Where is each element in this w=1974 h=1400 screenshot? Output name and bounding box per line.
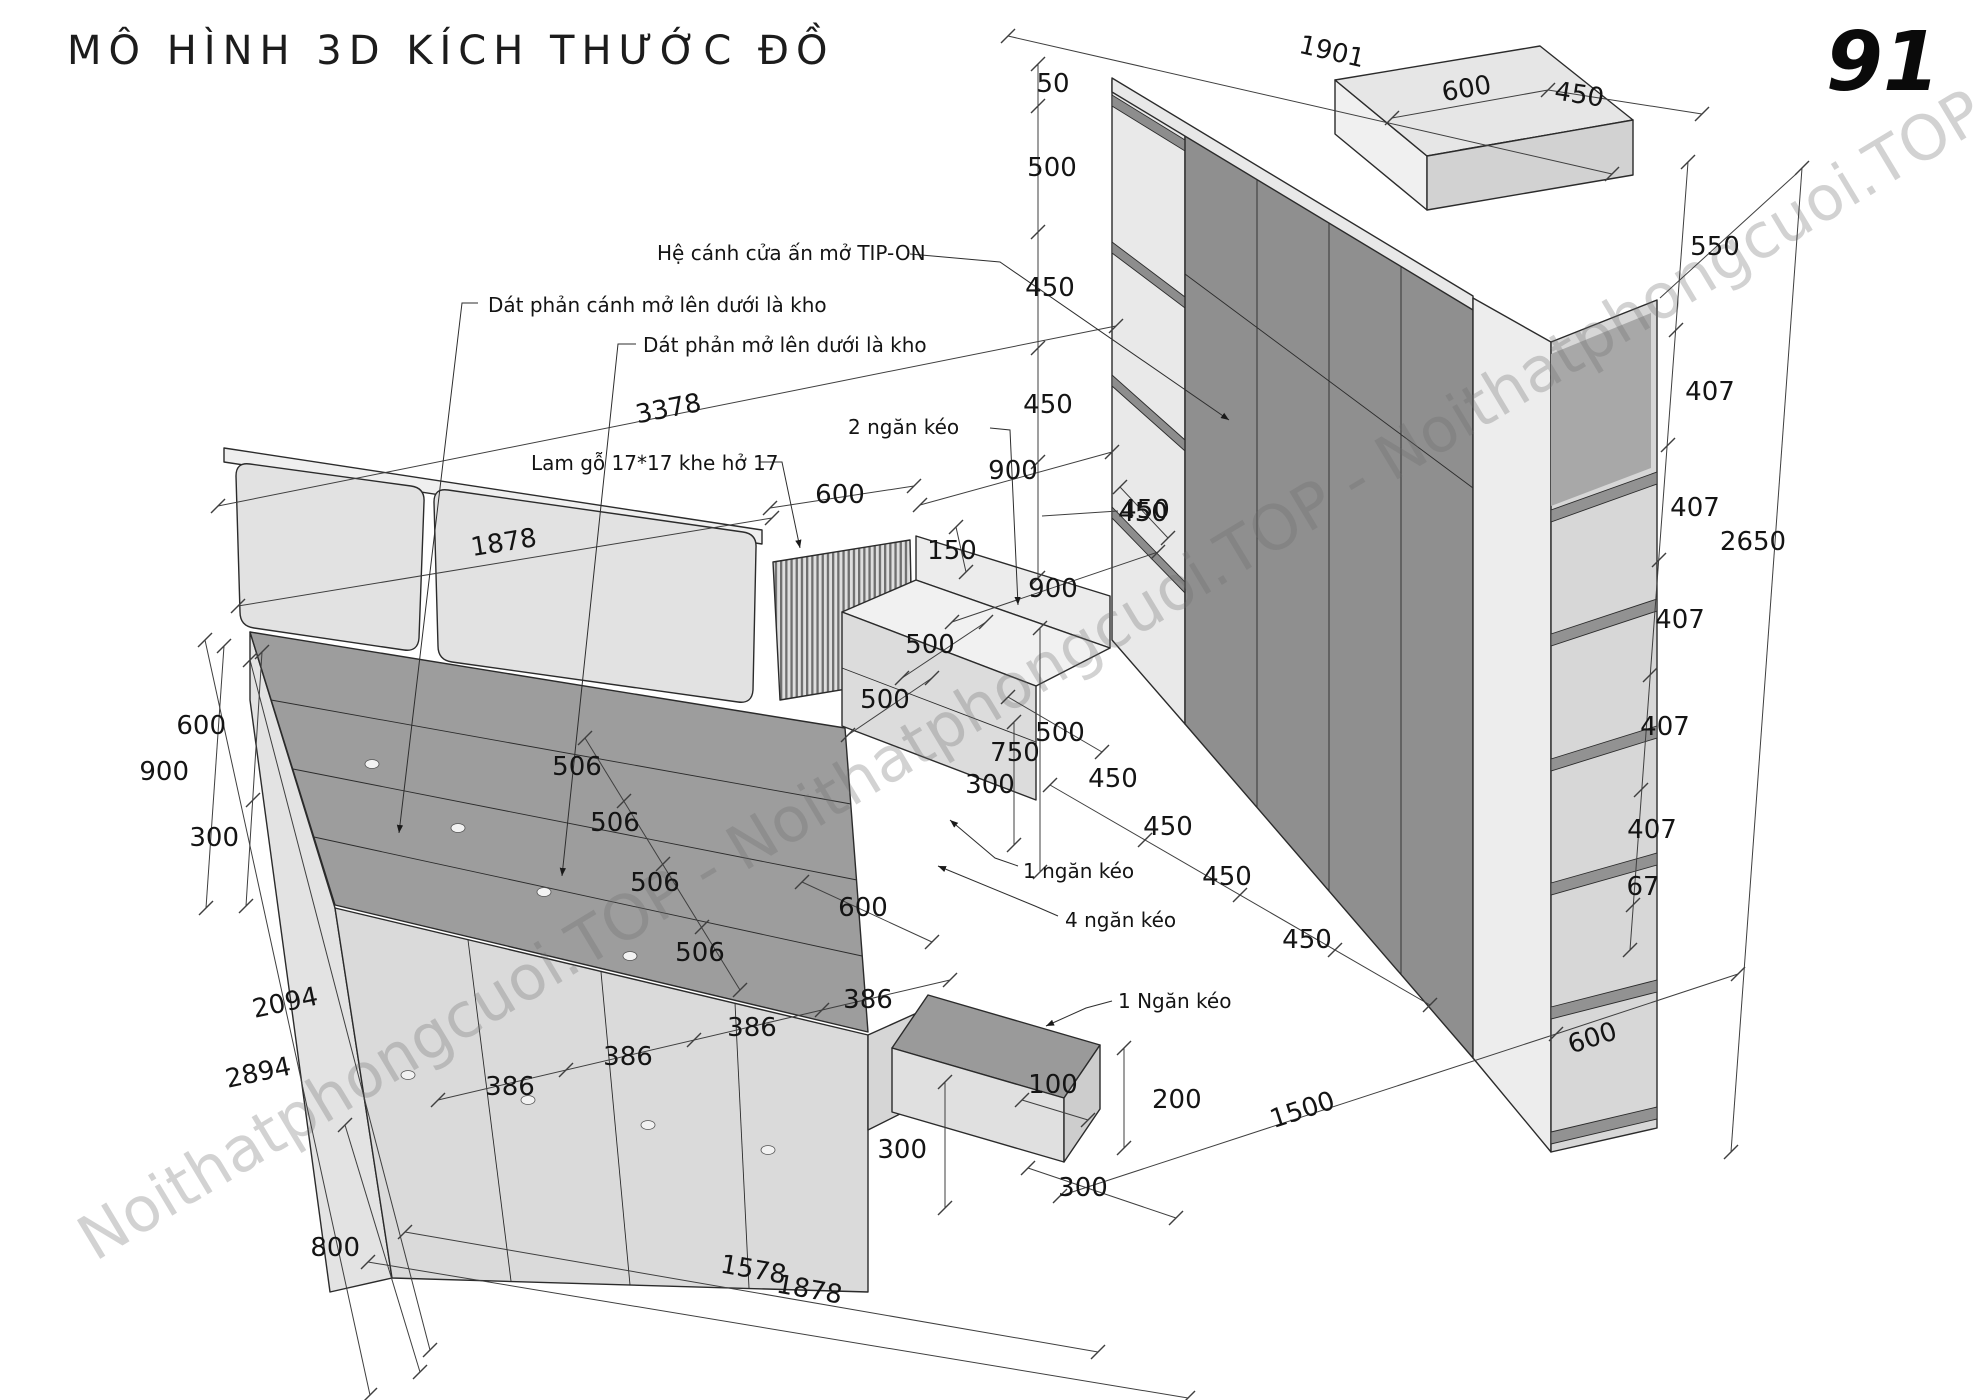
dim-label: 600 [838, 893, 888, 923]
page-number: 91 [1826, 15, 1940, 110]
dim-label: 386 [727, 1013, 777, 1043]
dim-label: 800 [310, 1233, 360, 1263]
dim-label: 300 [1058, 1173, 1108, 1203]
drawing-sheet: Noithatphongcuoi.TOP - Noithatphongcuoi.… [0, 0, 1974, 1400]
dim-label: 50 [1036, 69, 1069, 99]
annotation-one-drawer-cap: 1 Ngăn kéo [1118, 989, 1231, 1013]
headboard-panel [236, 464, 424, 651]
dim-label: 900 [139, 757, 189, 787]
dim-label: 2650 [1720, 527, 1786, 557]
dim-label: 900 [1028, 574, 1078, 604]
page-title: MÔ HÌNH 3D KÍCH THƯỚC ĐỒ [67, 21, 835, 74]
dim-label: 150 [927, 536, 977, 566]
dim-label: 450 [1088, 764, 1138, 794]
dim-label: 450 [1202, 862, 1252, 892]
annotation-panel-storage: Dát phản mở lên dưới là kho [643, 333, 927, 357]
dim-label: 900 [988, 456, 1038, 486]
dim-label: 300 [877, 1135, 927, 1165]
3d-dimension-drawing: Noithatphongcuoi.TOP - Noithatphongcuoi.… [0, 0, 1974, 1400]
dim-label: 300 [189, 823, 239, 853]
dim-label: 386 [485, 1072, 535, 1102]
dim-label: 300 [965, 770, 1015, 800]
dim-label: 407 [1640, 712, 1690, 742]
dim-label: 67 [1626, 872, 1659, 902]
annotation-four-drawer: 4 ngăn kéo [1065, 908, 1176, 932]
dim-label: 450 [1143, 812, 1193, 842]
dim-label: 100 [1028, 1070, 1078, 1100]
dim-label: 506 [630, 868, 680, 898]
dim-label: 200 [1152, 1085, 1202, 1115]
annotation-two-drawer: 2 ngăn kéo [848, 415, 959, 439]
dim-label: 407 [1655, 605, 1705, 635]
annotation-panel-door-storage: Dát phản cánh mở lên dưới là kho [488, 293, 827, 317]
annotation-tipon: Hệ cánh cửa ấn mở TIP-ON [657, 241, 926, 265]
dim-label: 600 [815, 480, 865, 510]
dim-label: 600 [176, 711, 226, 741]
dim-label: 506 [552, 752, 602, 782]
dim-label: 386 [843, 985, 893, 1015]
dim-label: 407 [1685, 377, 1735, 407]
dim-label: 500 [860, 685, 910, 715]
dim-label: 500 [1027, 153, 1077, 183]
dim-label: 450 [1023, 390, 1073, 420]
dim-label: 450 [1025, 273, 1075, 303]
dim-label: 750 [990, 738, 1040, 768]
dim-label: 450 [1282, 925, 1332, 955]
dim-label: 500 [905, 630, 955, 660]
annotation-slat: Lam gỗ 17*17 khe hở 17 [531, 451, 778, 475]
dim-label: 550 [1690, 232, 1740, 262]
annotation-one-drawer: 1 ngăn kéo [1023, 859, 1134, 883]
dim-label: 407 [1670, 493, 1720, 523]
dim-label: 450 [1118, 498, 1168, 528]
dim-label: 500 [1035, 718, 1085, 748]
dim-label: 506 [590, 808, 640, 838]
dim-label: 407 [1627, 815, 1677, 845]
dim-label: 506 [675, 938, 725, 968]
dim-label: 386 [603, 1042, 653, 1072]
